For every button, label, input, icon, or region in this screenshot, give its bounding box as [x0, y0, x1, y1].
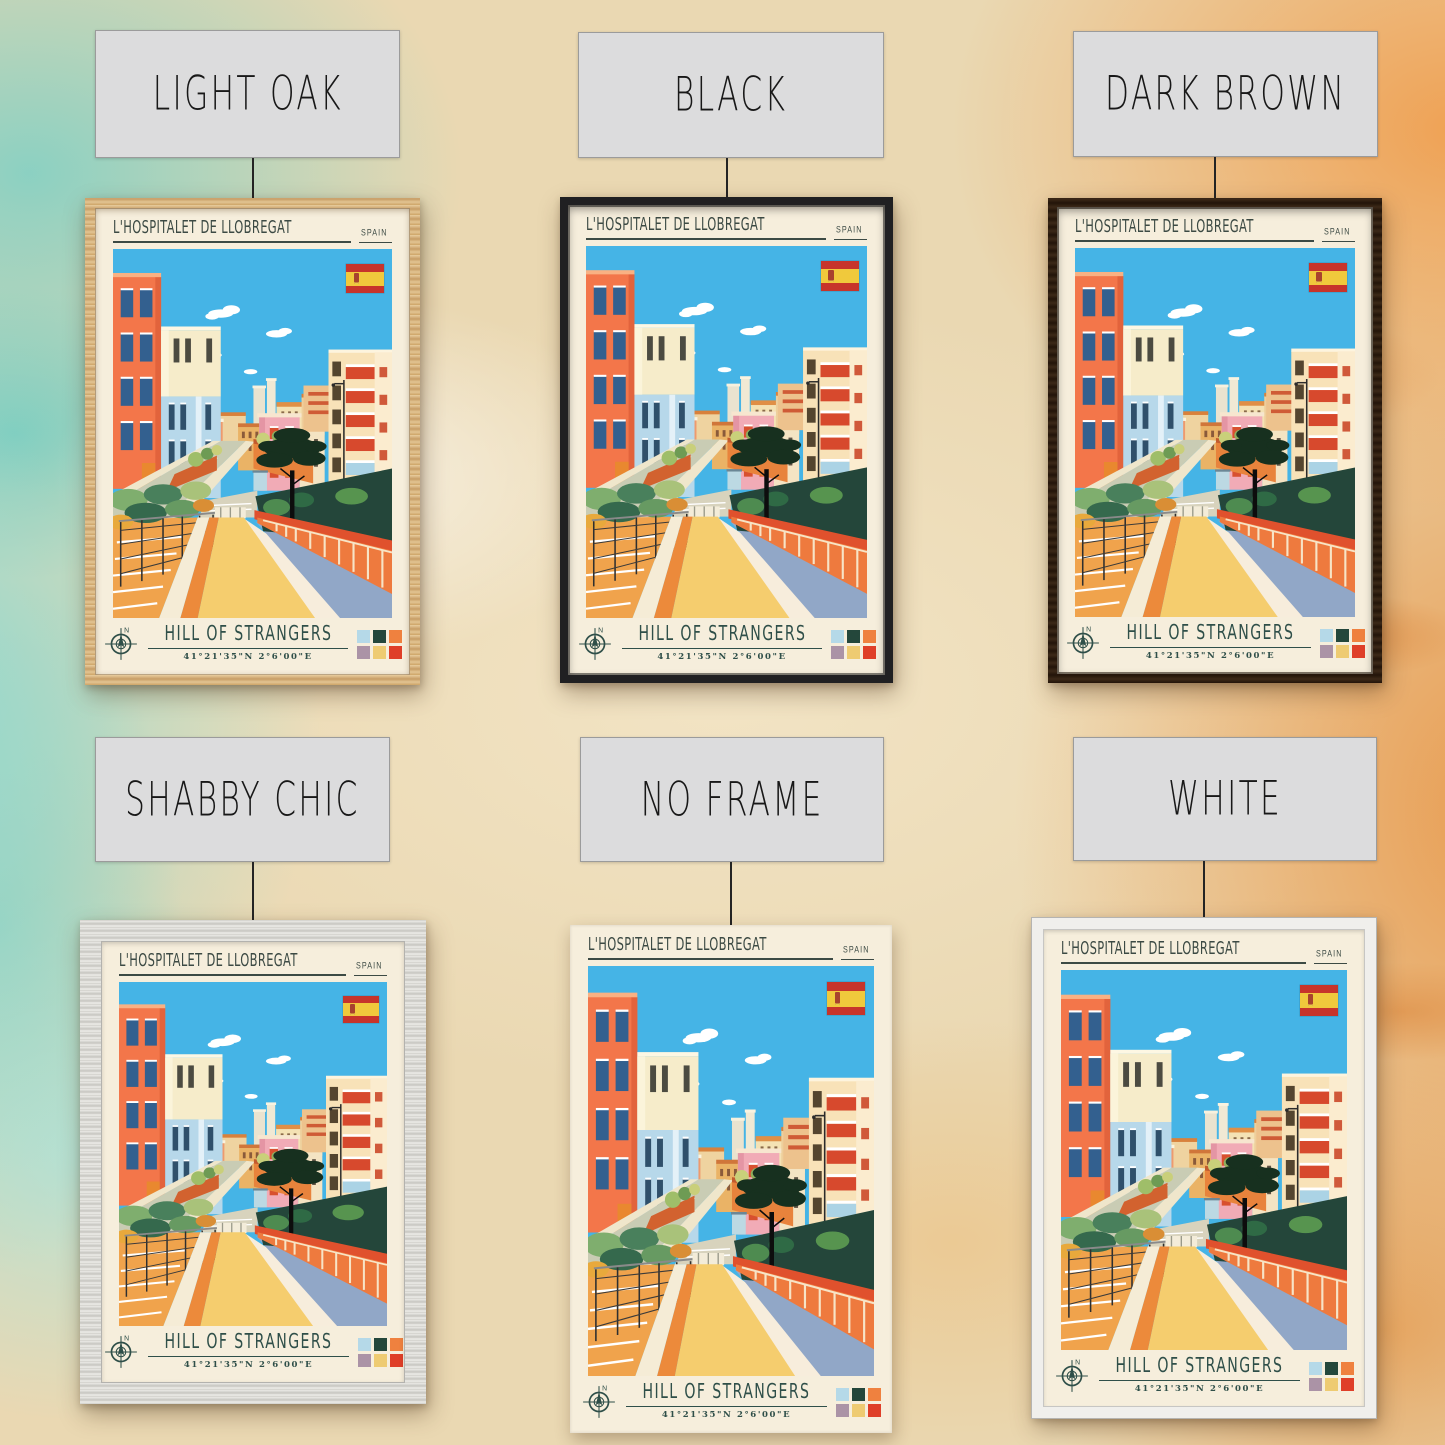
- variant-label-text: BLACK: [674, 68, 787, 122]
- variant-label-text: WHITE: [1168, 772, 1282, 826]
- compass-icon: N: [1065, 625, 1101, 661]
- poster-country: SPAIN: [841, 940, 874, 960]
- poster-coordinates: 41°21'35"N 2°6'00"E: [1099, 1384, 1300, 1394]
- flag-red-stripe: [346, 286, 384, 294]
- spain-flag-icon: [827, 982, 866, 1015]
- gate: [1166, 1236, 1198, 1247]
- poster-place: HILL OF STRANGERS: [164, 621, 332, 645]
- variant-label-card-dark-brown: DARK BROWN: [1073, 31, 1378, 157]
- label-connector-line: [252, 862, 254, 920]
- poster-place-block: HILL OF STRANGERS 41°21'35"N 2°6'00"E: [1099, 1358, 1300, 1394]
- flag-emblem: [835, 992, 841, 1005]
- poster-title: L'HOSPITALET DE LLOBREGAT: [586, 214, 765, 235]
- left-orange-building: [588, 993, 637, 1233]
- poster-title: L'HOSPITALET DE LLOBREGAT: [1075, 216, 1254, 237]
- poster-title-rule: L'HOSPITALET DE LLOBREGAT: [1075, 220, 1314, 242]
- flag-yellow-stripe: [1309, 271, 1347, 285]
- palette-swatch: [847, 646, 860, 659]
- poster-country-text: SPAIN: [361, 227, 387, 238]
- gate: [689, 506, 720, 517]
- poster-frame-no-frame: L'HOSPITALET DE LLOBREGAT SPAIN: [570, 925, 892, 1433]
- spain-flag-icon: [346, 264, 384, 294]
- compass-north-label: N: [598, 627, 603, 634]
- poster-frame-dark-brown: L'HOSPITALET DE LLOBREGAT SPAIN: [1048, 198, 1382, 683]
- city-illustration: [586, 246, 867, 618]
- poster-illustration: [1061, 970, 1347, 1350]
- gate: [217, 1223, 247, 1233]
- variant-label-card-white: WHITE: [1073, 737, 1377, 861]
- poster-place-rule: HILL OF STRANGERS: [148, 626, 349, 649]
- variant-label-text: NO FRAME: [641, 772, 824, 826]
- palette-swatch: [389, 646, 402, 659]
- palette-swatch: [1341, 1378, 1354, 1391]
- poster-place-block: HILL OF STRANGERS 41°21'35"N 2°6'00"E: [1110, 625, 1311, 661]
- compass-icon: N: [581, 1384, 617, 1420]
- variant-label-card-no-frame: NO FRAME: [580, 737, 884, 862]
- palette-swatch: [836, 1388, 849, 1401]
- palette-swatch: [1336, 629, 1349, 642]
- palette-swatch: [1352, 629, 1365, 642]
- flag-emblem: [1308, 994, 1314, 1006]
- label-connector-line: [1203, 861, 1205, 918]
- palette-swatch: [863, 630, 876, 643]
- palette-swatch: [1309, 1362, 1322, 1375]
- palette-swatches: [836, 1388, 881, 1417]
- palette-swatch: [831, 646, 844, 659]
- poster-coordinates: 41°21'35"N 2°6'00"E: [622, 652, 823, 662]
- poster-country-text: SPAIN: [843, 944, 869, 955]
- poster-place-block: HILL OF STRANGERS 41°21'35"N 2°6'00"E: [622, 626, 823, 662]
- poster-country: SPAIN: [354, 956, 387, 976]
- poster-footer: N HILL OF STRANGERS 41°21'35"N 2°6'00"E: [582, 626, 871, 662]
- poster-coordinates: 41°21'35"N 2°6'00"E: [148, 1360, 349, 1370]
- palette-swatches: [831, 630, 876, 659]
- poster-header: L'HOSPITALET DE LLOBREGAT SPAIN: [119, 954, 387, 976]
- poster-footer: N HILL OF STRANGERS 41°21'35"N 2°6'00"E: [109, 626, 396, 662]
- poster-title: L'HOSPITALET DE LLOBREGAT: [113, 217, 292, 238]
- palette-swatch: [863, 646, 876, 659]
- compass-icon: N: [1054, 1358, 1090, 1394]
- variant-label-text: DARK BROWN: [1105, 67, 1346, 121]
- city-illustration: [588, 966, 874, 1376]
- poster-title-rule: L'HOSPITALET DE LLOBREGAT: [119, 954, 346, 976]
- flag-red-stripe: [821, 283, 859, 291]
- flag-red-stripe: [1300, 1008, 1339, 1016]
- palette-swatches: [358, 1338, 403, 1367]
- poster-place: HILL OF STRANGERS: [165, 1329, 333, 1353]
- variant-label-text: SHABBY CHIC: [125, 772, 360, 826]
- flag-yellow-stripe: [827, 991, 866, 1007]
- gate: [1177, 506, 1208, 517]
- label-connector-line: [252, 158, 254, 198]
- poster-country: SPAIN: [1322, 222, 1355, 242]
- spain-flag-icon: [821, 261, 859, 291]
- flag-red-stripe: [1309, 285, 1347, 293]
- flag-red-stripe: [827, 1007, 866, 1016]
- flag-yellow-stripe: [1300, 993, 1339, 1007]
- compass-icon: N: [103, 626, 139, 662]
- palette-swatches: [1320, 629, 1365, 658]
- poster-footer: N HILL OF STRANGERS 41°21'35"N 2°6'00"E: [584, 1384, 878, 1420]
- flag-red-stripe: [1309, 263, 1347, 271]
- palette-swatch: [1320, 629, 1333, 642]
- city-illustration: [113, 249, 392, 618]
- palette-swatch: [390, 1354, 403, 1367]
- compass-icon: N: [577, 626, 613, 662]
- poster-place-rule: HILL OF STRANGERS: [1110, 625, 1311, 648]
- palette-swatch: [389, 630, 402, 643]
- palette-swatch: [357, 646, 370, 659]
- poster-footer: N HILL OF STRANGERS 41°21'35"N 2°6'00"E: [115, 1334, 391, 1370]
- poster-title-rule: L'HOSPITALET DE LLOBREGAT: [1061, 942, 1306, 964]
- travel-poster: L'HOSPITALET DE LLOBREGAT SPAIN: [570, 925, 892, 1433]
- poster-frame-shabby-chic: L'HOSPITALET DE LLOBREGAT SPAIN: [80, 920, 426, 1404]
- poster-place-rule: HILL OF STRANGERS: [626, 1384, 827, 1407]
- compass-north-label: N: [124, 627, 129, 634]
- poster-footer: N HILL OF STRANGERS 41°21'35"N 2°6'00"E: [1071, 625, 1359, 661]
- poster-coordinates: 41°21'35"N 2°6'00"E: [1110, 651, 1311, 661]
- palette-swatch: [868, 1404, 881, 1417]
- city-illustration: [1075, 248, 1355, 617]
- poster-title-rule: L'HOSPITALET DE LLOBREGAT: [586, 218, 826, 240]
- left-orange-building: [113, 273, 161, 489]
- frame-options-board: LIGHT OAK L'HOSPITALET DE LLOBREGAT SPAI…: [0, 0, 1445, 1445]
- travel-poster: L'HOSPITALET DE LLOBREGAT SPAIN: [101, 941, 405, 1383]
- palette-swatch: [1320, 645, 1333, 658]
- poster-illustration: [119, 982, 387, 1326]
- flag-red-stripe: [343, 1016, 379, 1023]
- compass-north-label: N: [602, 1385, 607, 1392]
- spain-flag-icon: [1309, 263, 1347, 293]
- palette-swatch: [358, 1338, 371, 1351]
- flag-yellow-stripe: [346, 272, 384, 286]
- left-orange-building: [586, 270, 634, 488]
- palette-swatch: [868, 1388, 881, 1401]
- flag-red-stripe: [1300, 985, 1339, 993]
- palette-swatch: [847, 630, 860, 643]
- poster-coordinates: 41°21'35"N 2°6'00"E: [626, 1410, 827, 1420]
- poster-country: SPAIN: [359, 223, 392, 243]
- flag-red-stripe: [827, 982, 866, 991]
- flag-emblem: [354, 273, 360, 285]
- poster-frame-light-oak: L'HOSPITALET DE LLOBREGAT SPAIN: [85, 198, 420, 685]
- poster-country-text: SPAIN: [1324, 226, 1350, 237]
- poster-frame-black: L'HOSPITALET DE LLOBREGAT SPAIN: [560, 197, 893, 683]
- palette-swatch: [373, 630, 386, 643]
- poster-illustration: [586, 246, 867, 618]
- palette-swatch: [1341, 1362, 1354, 1375]
- palette-swatch: [1309, 1378, 1322, 1391]
- spain-flag-icon: [1300, 985, 1339, 1015]
- travel-poster: L'HOSPITALET DE LLOBREGAT SPAIN: [1043, 929, 1365, 1407]
- poster-header: L'HOSPITALET DE LLOBREGAT SPAIN: [586, 218, 867, 240]
- poster-country-text: SPAIN: [356, 960, 382, 971]
- palette-swatch: [1325, 1362, 1338, 1375]
- palette-swatch: [1352, 645, 1365, 658]
- palette-swatch: [1325, 1378, 1338, 1391]
- flag-yellow-stripe: [821, 269, 859, 283]
- label-connector-line: [1214, 157, 1216, 198]
- variant-label-card-light-oak: LIGHT OAK: [95, 30, 400, 158]
- variant-label-card-black: BLACK: [578, 32, 884, 158]
- palette-swatch: [373, 646, 386, 659]
- palette-swatch: [357, 630, 370, 643]
- poster-country: SPAIN: [834, 220, 867, 240]
- variant-label-card-shabby-chic: SHABBY CHIC: [95, 737, 390, 862]
- left-orange-building: [119, 1004, 165, 1205]
- poster-frame-white: L'HOSPITALET DE LLOBREGAT SPAIN: [1032, 918, 1376, 1418]
- poster-place-block: HILL OF STRANGERS 41°21'35"N 2°6'00"E: [148, 626, 349, 662]
- travel-poster: L'HOSPITALET DE LLOBREGAT SPAIN: [568, 205, 885, 675]
- poster-title: L'HOSPITALET DE LLOBREGAT: [119, 950, 298, 971]
- poster-place-block: HILL OF STRANGERS 41°21'35"N 2°6'00"E: [626, 1384, 827, 1420]
- poster-place-rule: HILL OF STRANGERS: [1099, 1358, 1300, 1381]
- palette-swatch: [1336, 645, 1349, 658]
- flag-yellow-stripe: [343, 1003, 379, 1016]
- palette-swatch: [831, 630, 844, 643]
- palette-swatches: [1309, 1362, 1354, 1391]
- poster-place: HILL OF STRANGERS: [643, 1379, 811, 1403]
- poster-title-rule: L'HOSPITALET DE LLOBREGAT: [113, 221, 351, 243]
- poster-place: HILL OF STRANGERS: [1116, 1353, 1284, 1377]
- poster-place-block: HILL OF STRANGERS 41°21'35"N 2°6'00"E: [148, 1334, 349, 1370]
- compass-north-label: N: [1086, 626, 1091, 633]
- flag-red-stripe: [346, 264, 384, 272]
- poster-title: L'HOSPITALET DE LLOBREGAT: [588, 934, 767, 955]
- poster-place-rule: HILL OF STRANGERS: [622, 626, 823, 649]
- travel-poster: L'HOSPITALET DE LLOBREGAT SPAIN: [1057, 207, 1373, 674]
- label-connector-line: [726, 158, 728, 197]
- flag-red-stripe: [821, 261, 859, 269]
- poster-title-rule: L'HOSPITALET DE LLOBREGAT: [588, 938, 833, 960]
- compass-north-label: N: [124, 1335, 129, 1342]
- poster-header: L'HOSPITALET DE LLOBREGAT SPAIN: [1075, 220, 1355, 242]
- poster-header: L'HOSPITALET DE LLOBREGAT SPAIN: [1061, 942, 1347, 964]
- poster-coordinates: 41°21'35"N 2°6'00"E: [148, 652, 349, 662]
- poster-footer: N HILL OF STRANGERS 41°21'35"N 2°6'00"E: [1057, 1358, 1351, 1394]
- flag-emblem: [828, 270, 834, 282]
- poster-header: L'HOSPITALET DE LLOBREGAT SPAIN: [588, 938, 874, 960]
- palette-swatch: [374, 1338, 387, 1351]
- palette-swatch: [358, 1354, 371, 1367]
- palette-swatch: [374, 1354, 387, 1367]
- flag-emblem: [350, 1004, 355, 1015]
- poster-title: L'HOSPITALET DE LLOBREGAT: [1061, 938, 1240, 959]
- label-connector-line: [730, 862, 732, 925]
- left-orange-building: [1075, 272, 1123, 488]
- left-orange-building: [1061, 995, 1110, 1217]
- spain-flag-icon: [343, 996, 379, 1024]
- poster-country: SPAIN: [1314, 944, 1347, 964]
- gate: [693, 1253, 725, 1265]
- poster-place-rule: HILL OF STRANGERS: [148, 1334, 349, 1357]
- palette-swatch: [390, 1338, 403, 1351]
- compass-north-label: N: [1075, 1359, 1080, 1366]
- variant-label-text: LIGHT OAK: [152, 67, 342, 121]
- palette-swatch: [836, 1404, 849, 1417]
- travel-poster: L'HOSPITALET DE LLOBREGAT SPAIN: [95, 208, 410, 675]
- poster-illustration: [113, 249, 392, 618]
- palette-swatch: [852, 1404, 865, 1417]
- city-illustration: [1061, 970, 1347, 1350]
- palette-swatches: [357, 630, 402, 659]
- gate: [215, 507, 246, 518]
- poster-illustration: [588, 966, 874, 1376]
- flag-red-stripe: [343, 996, 379, 1003]
- palette-swatch: [852, 1388, 865, 1401]
- poster-header: L'HOSPITALET DE LLOBREGAT SPAIN: [113, 221, 392, 243]
- poster-illustration: [1075, 248, 1355, 617]
- poster-place: HILL OF STRANGERS: [638, 621, 806, 645]
- poster-country-text: SPAIN: [836, 224, 862, 235]
- poster-place: HILL OF STRANGERS: [1127, 620, 1295, 644]
- compass-icon: N: [103, 1334, 139, 1370]
- city-illustration: [119, 982, 387, 1326]
- flag-emblem: [1316, 272, 1322, 284]
- poster-country-text: SPAIN: [1316, 948, 1342, 959]
